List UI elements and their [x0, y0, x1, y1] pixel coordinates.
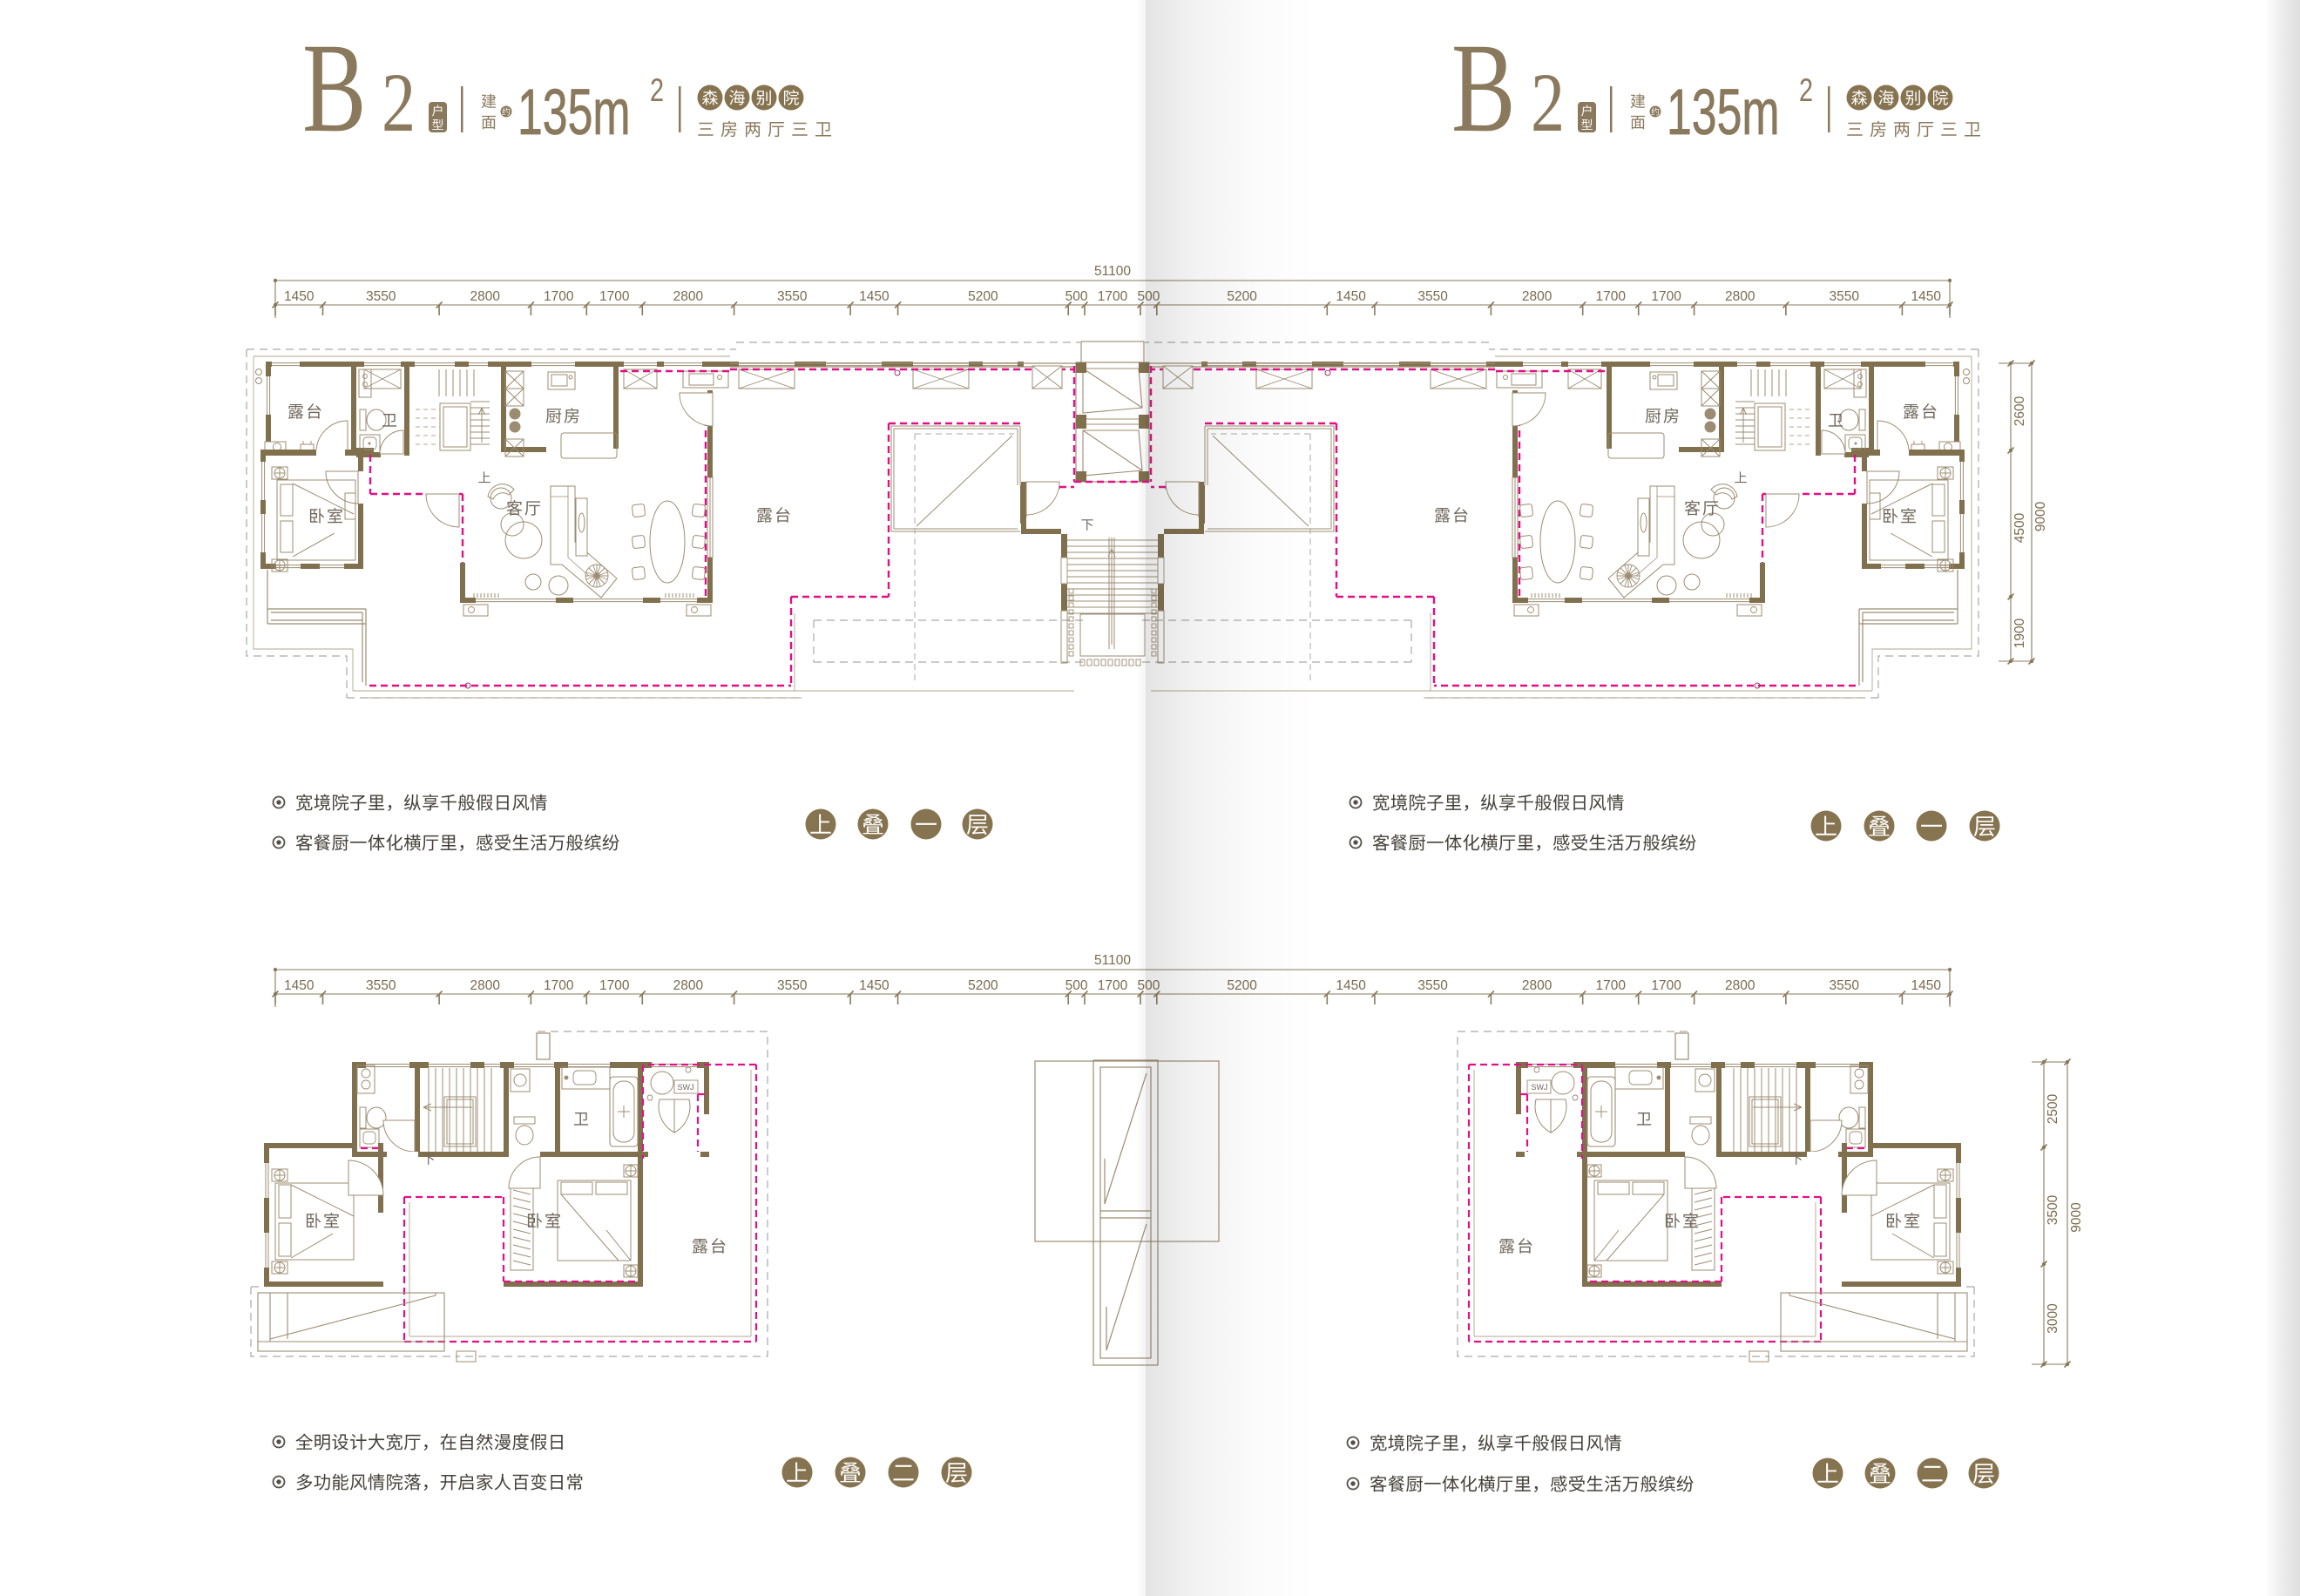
svg-text:1450: 1450	[859, 289, 890, 304]
svg-text:135m: 135m	[517, 76, 631, 148]
svg-text:1700: 1700	[1595, 978, 1626, 993]
svg-text:1700: 1700	[599, 289, 630, 304]
svg-text:2800: 2800	[470, 289, 500, 304]
svg-text:2: 2	[1799, 73, 1813, 109]
svg-text:1450: 1450	[284, 289, 315, 304]
svg-text:500: 500	[1065, 289, 1088, 304]
svg-text:2500: 2500	[2046, 1093, 2060, 1124]
svg-text:1450: 1450	[859, 978, 890, 993]
svg-text:1700: 1700	[1651, 289, 1681, 304]
svg-text:3550: 3550	[1417, 978, 1448, 993]
svg-text:B: B	[302, 17, 367, 159]
svg-text:9000: 9000	[2033, 501, 2048, 531]
svg-text:1450: 1450	[1336, 289, 1366, 304]
svg-text:2800: 2800	[673, 289, 704, 304]
svg-text:2: 2	[650, 73, 664, 109]
svg-text:1450: 1450	[1911, 289, 1941, 304]
svg-text:2800: 2800	[673, 978, 704, 993]
svg-text:5200: 5200	[968, 978, 998, 993]
svg-text:500: 500	[1065, 978, 1088, 993]
svg-text:3000: 3000	[2046, 1303, 2060, 1334]
svg-text:B: B	[1451, 17, 1516, 159]
svg-text:1700: 1700	[599, 978, 630, 993]
svg-text:3550: 3550	[366, 289, 396, 304]
svg-text:2600: 2600	[2012, 396, 2027, 426]
svg-text:1700: 1700	[544, 978, 574, 993]
svg-text:4500: 4500	[2012, 512, 2027, 543]
svg-text:3550: 3550	[777, 978, 808, 993]
svg-text:3550: 3550	[1829, 289, 1859, 304]
svg-text:3550: 3550	[1417, 289, 1448, 304]
svg-text:2800: 2800	[470, 978, 500, 993]
svg-text:135m: 135m	[1667, 76, 1780, 148]
svg-text:2800: 2800	[1725, 289, 1755, 304]
svg-text:SWJ: SWJ	[1532, 1083, 1548, 1092]
svg-text:1450: 1450	[284, 978, 315, 993]
svg-text:1700: 1700	[1098, 978, 1128, 993]
svg-text:1700: 1700	[1595, 289, 1626, 304]
svg-text:3550: 3550	[366, 978, 396, 993]
svg-text:2800: 2800	[1522, 289, 1552, 304]
svg-text:2: 2	[382, 56, 416, 149]
svg-text:3550: 3550	[777, 289, 808, 304]
svg-text:1450: 1450	[1911, 978, 1941, 993]
svg-text:1700: 1700	[1098, 289, 1128, 304]
svg-text:1700: 1700	[1651, 978, 1681, 993]
svg-text:9000: 9000	[2069, 1202, 2084, 1233]
svg-text:3550: 3550	[1829, 978, 1859, 993]
svg-text:1900: 1900	[2012, 618, 2027, 648]
svg-text:2: 2	[1531, 56, 1565, 149]
svg-text:2800: 2800	[1522, 978, 1552, 993]
svg-text:SWJ: SWJ	[678, 1083, 694, 1092]
svg-text:51100: 51100	[1094, 953, 1131, 968]
svg-text:2800: 2800	[1725, 978, 1755, 993]
svg-text:51100: 51100	[1094, 264, 1131, 279]
svg-text:3500: 3500	[2046, 1194, 2060, 1225]
svg-text:1700: 1700	[544, 289, 574, 304]
svg-text:5200: 5200	[968, 289, 998, 304]
svg-text:1450: 1450	[1336, 978, 1366, 993]
